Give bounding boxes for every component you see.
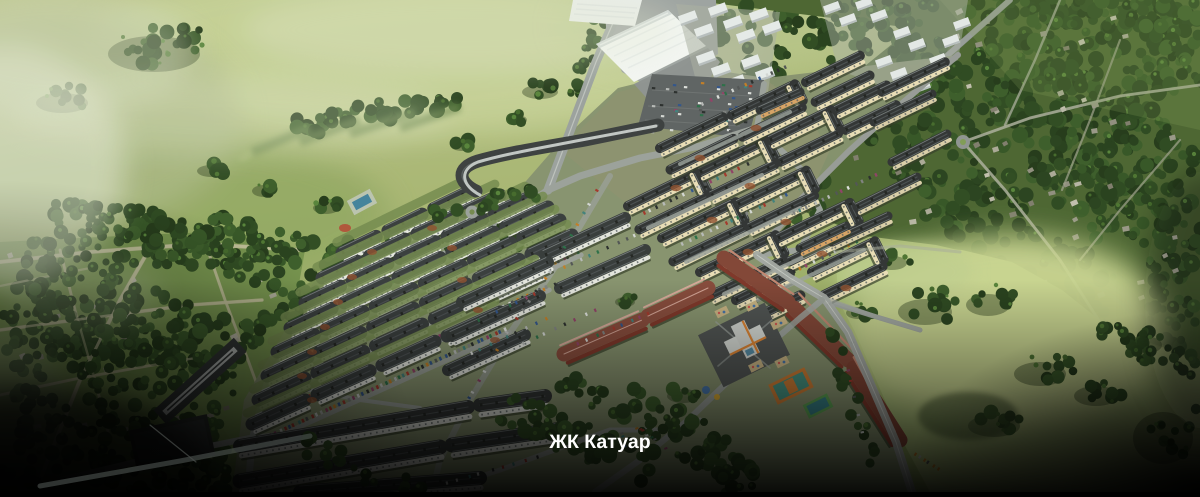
- svg-text:ЖК Катуар: ЖК Катуар: [548, 431, 650, 453]
